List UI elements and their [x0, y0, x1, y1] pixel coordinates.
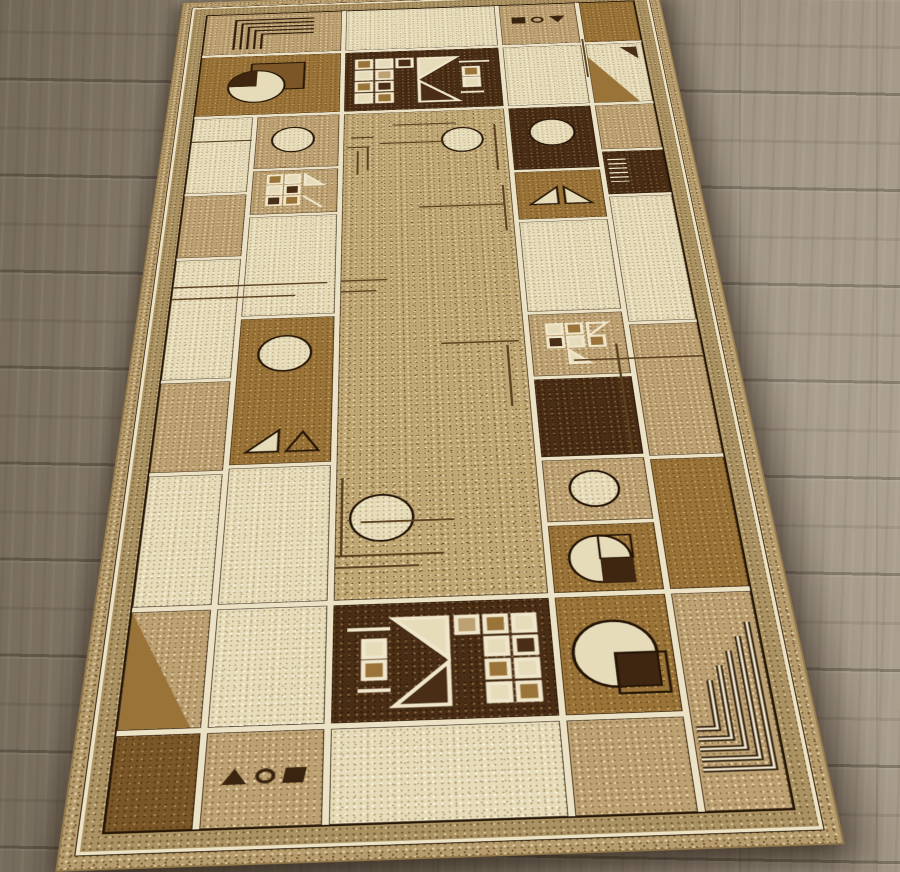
border-block-cream [208, 606, 328, 728]
border-block-cream [218, 465, 331, 605]
circle-block [542, 457, 654, 523]
accent-line [506, 345, 513, 406]
circle-glyph-icon [255, 768, 276, 784]
border-block-dark-comb [602, 149, 671, 194]
border-block-cream [241, 214, 337, 316]
triangle-outlines-icon [523, 181, 598, 207]
border-block-gold [650, 457, 749, 589]
field-circle-bottom [348, 493, 414, 543]
field-circle-top [441, 126, 485, 152]
border-block-cream [132, 474, 222, 607]
border-block-tan [177, 194, 247, 258]
circle-motif [256, 334, 313, 372]
square-glyph-icon [282, 767, 307, 783]
border-block-cream [519, 219, 621, 312]
border-block-cream [161, 259, 241, 381]
border-block-cream [503, 45, 590, 106]
brown-triangle-half [118, 610, 210, 730]
triangle-block-bottom-left [117, 610, 211, 731]
comb-lines-accent [607, 159, 629, 183]
squares-cluster-band-bottom [331, 598, 559, 724]
accent-line [367, 147, 369, 170]
accent-line [419, 203, 504, 207]
border-block-gold [579, 1, 641, 42]
glyph-block-top [499, 3, 581, 45]
circle-motif [270, 126, 315, 153]
border-block-tan [149, 381, 230, 473]
circle-block [253, 114, 339, 168]
gold-triangle-half [586, 43, 652, 102]
accent-line [493, 124, 499, 170]
accent-line [341, 279, 387, 282]
circle-glyph-icon [530, 16, 544, 23]
accent-line [357, 151, 359, 174]
quarter-circle-block-bottom [555, 594, 683, 715]
triangle-block-top-right [585, 43, 653, 103]
squares-cluster-motif-icon [342, 609, 547, 710]
small-squares-cluster-icon [541, 319, 617, 368]
glyph-row-bottom [204, 766, 323, 786]
quarter-pie-circle-icon [557, 524, 655, 592]
greek-key-motif-top-left [202, 11, 342, 55]
border-block-tan [595, 103, 663, 149]
border-block-cream [609, 195, 696, 322]
triangle-up-glyph-icon [221, 768, 247, 785]
quarter-circle-block [548, 523, 664, 593]
glyph-row-top [500, 15, 576, 24]
triangle-outlines-icon [240, 422, 322, 456]
accent-line [502, 185, 508, 230]
square-glyph-icon [511, 17, 525, 24]
accent-line [392, 122, 456, 125]
squares-cluster-band-top [344, 48, 503, 112]
circle-motif [567, 469, 623, 508]
small-squares-cluster-icon [261, 171, 326, 211]
pie-circle-block-top-left [195, 53, 341, 117]
circle-and-triangles-block [229, 316, 334, 465]
small-squares-cluster-block [250, 168, 339, 215]
accent-line [341, 290, 377, 293]
accent-line [335, 564, 419, 569]
accent-line [351, 137, 374, 139]
triangles-block-gold [514, 169, 607, 219]
glyph-block-bottom [199, 729, 324, 829]
greek-key-lines-icon [228, 15, 317, 51]
border-block-cream [185, 117, 253, 194]
accent-line [441, 340, 519, 344]
circle-block-dark [508, 106, 599, 170]
border-block-tan [629, 322, 723, 456]
accent-line [380, 141, 445, 144]
border-band-cream-bottom [329, 721, 569, 825]
small-dark-triangle-icon [620, 47, 639, 59]
border-band-cream-top [345, 6, 498, 51]
border-block-tan [566, 716, 698, 816]
greek-key-lines-icon [678, 619, 784, 778]
circle-motif [527, 118, 577, 146]
photo-scene [0, 0, 900, 872]
pie-circle-motif-icon [214, 59, 314, 109]
accent-line [335, 552, 443, 558]
quarter-pie-circle-icon [558, 609, 678, 698]
accent-line [340, 478, 344, 555]
border-block-brown [104, 733, 201, 832]
squares-cluster-motif-icon [352, 54, 495, 106]
triangle-down-glyph-icon [549, 15, 566, 22]
